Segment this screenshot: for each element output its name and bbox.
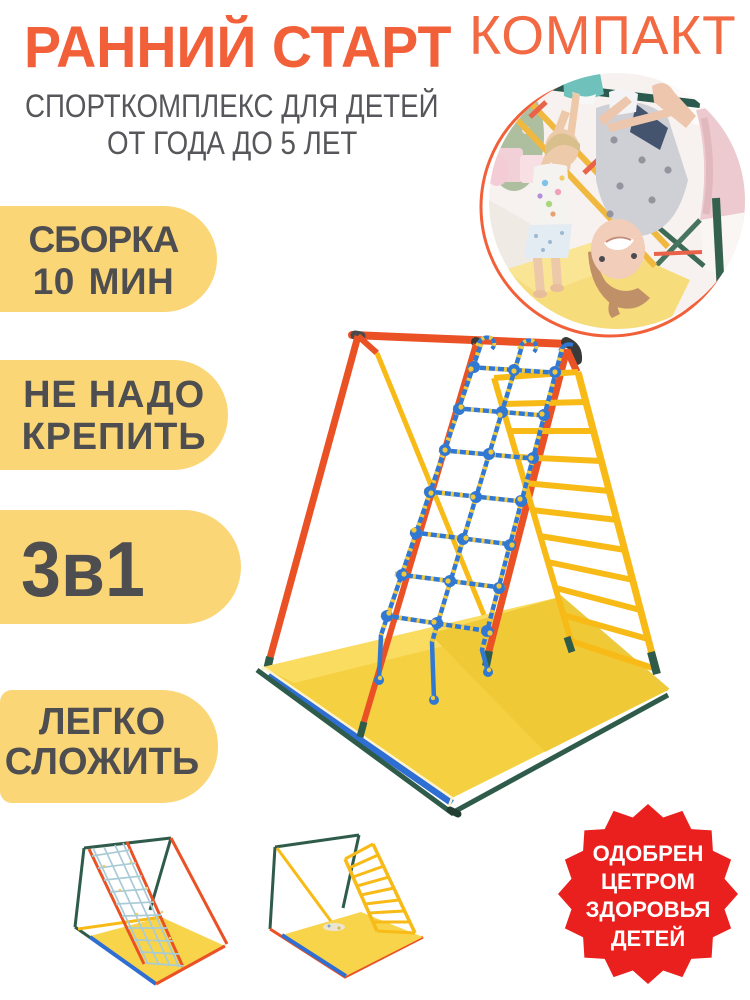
svg-text:ОДОБРЕН: ОДОБРЕН [593, 841, 704, 866]
svg-text:ЗДОРОВЬЯ: ЗДОРОВЬЯ [586, 897, 711, 922]
svg-text:ЦЕТРОМ: ЦЕТРОМ [601, 869, 695, 894]
svg-text:ДЕТЕЙ: ДЕТЕЙ [611, 926, 685, 951]
